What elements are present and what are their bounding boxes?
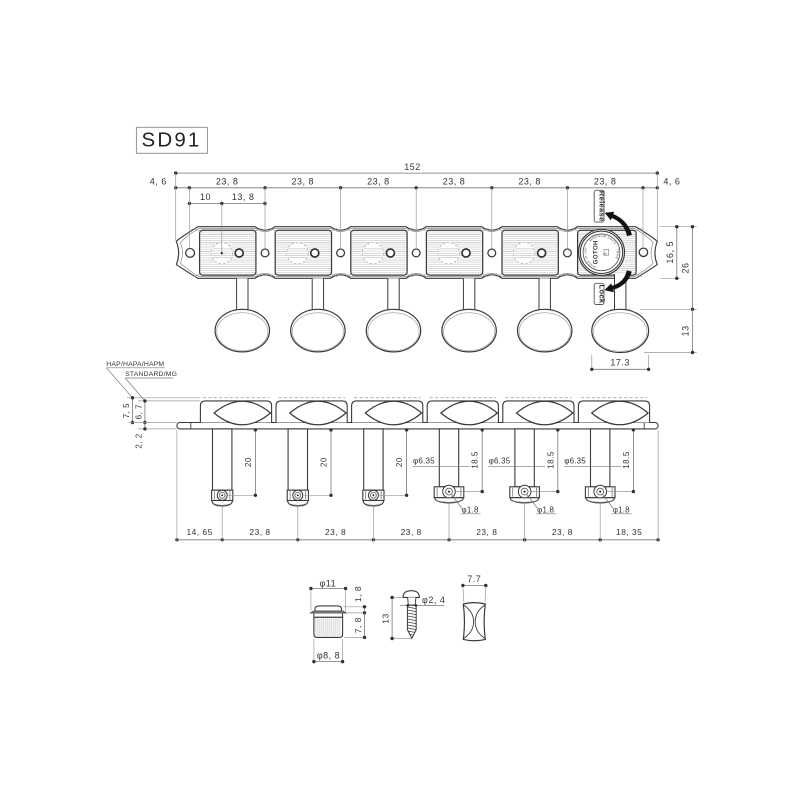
svg-text:152: 152 xyxy=(404,162,421,172)
svg-text:18.5: 18.5 xyxy=(622,451,631,469)
svg-text:23, 8: 23, 8 xyxy=(518,177,541,187)
svg-text:16, 5: 16, 5 xyxy=(665,241,675,264)
svg-text:18.5: 18.5 xyxy=(471,451,480,469)
svg-text:Lock: Lock xyxy=(597,285,606,304)
svg-text:23, 8: 23, 8 xyxy=(292,177,315,187)
svg-text:1, 8: 1, 8 xyxy=(353,586,363,602)
svg-text:26: 26 xyxy=(681,262,691,273)
svg-text:17.3: 17.3 xyxy=(610,357,630,367)
svg-text:20: 20 xyxy=(320,457,329,467)
svg-text:23, 8: 23, 8 xyxy=(367,177,390,187)
svg-text:φ6.35: φ6.35 xyxy=(564,456,586,465)
svg-text:7, 8: 7, 8 xyxy=(353,617,363,633)
svg-text:S: S xyxy=(602,252,607,255)
svg-text:7.7: 7.7 xyxy=(467,574,481,584)
svg-text:13: 13 xyxy=(681,325,691,336)
svg-text:13: 13 xyxy=(381,613,391,623)
svg-text:7, 5: 7, 5 xyxy=(122,403,131,418)
svg-text:23, 8: 23, 8 xyxy=(401,527,422,537)
svg-text:4, 6: 4, 6 xyxy=(150,177,167,187)
svg-text:10: 10 xyxy=(200,192,211,202)
svg-text:23, 8: 23, 8 xyxy=(249,527,270,537)
svg-text:23, 8: 23, 8 xyxy=(443,177,466,187)
svg-text:13, 8: 13, 8 xyxy=(232,192,255,202)
svg-text:23, 8: 23, 8 xyxy=(594,177,617,187)
svg-text:23, 8: 23, 8 xyxy=(476,527,497,537)
svg-text:φ11: φ11 xyxy=(319,578,336,588)
svg-text:18.5: 18.5 xyxy=(546,451,555,469)
svg-text:SD91: SD91 xyxy=(141,129,201,152)
svg-text:φ8, 8: φ8, 8 xyxy=(317,651,340,661)
svg-text:23, 8: 23, 8 xyxy=(552,527,573,537)
svg-text:14, 65: 14, 65 xyxy=(186,527,212,537)
svg-text:4, 6: 4, 6 xyxy=(663,177,680,187)
svg-text:φ1.8: φ1.8 xyxy=(613,505,630,514)
svg-text:φ6.35: φ6.35 xyxy=(413,456,435,465)
svg-text:6, 7: 6, 7 xyxy=(134,404,143,419)
svg-text:23, 8: 23, 8 xyxy=(325,527,346,537)
svg-text:20: 20 xyxy=(244,457,253,467)
svg-text:Release: Release xyxy=(597,191,606,222)
svg-text:23, 8: 23, 8 xyxy=(216,177,239,187)
svg-text:GOTOH: GOTOH xyxy=(593,240,600,264)
svg-text:HAP/HAPA/HAPM: HAP/HAPA/HAPM xyxy=(106,361,164,368)
svg-text:φ1.8: φ1.8 xyxy=(462,505,479,514)
svg-text:STANDARD/MG: STANDARD/MG xyxy=(125,371,177,378)
svg-text:φ1.8: φ1.8 xyxy=(537,505,554,514)
svg-text:20: 20 xyxy=(395,457,404,467)
svg-text:18, 35: 18, 35 xyxy=(616,527,642,537)
svg-text:φ2, 4: φ2, 4 xyxy=(422,595,445,605)
svg-text:2, 2: 2, 2 xyxy=(134,433,143,448)
svg-text:φ6.35: φ6.35 xyxy=(489,456,511,465)
